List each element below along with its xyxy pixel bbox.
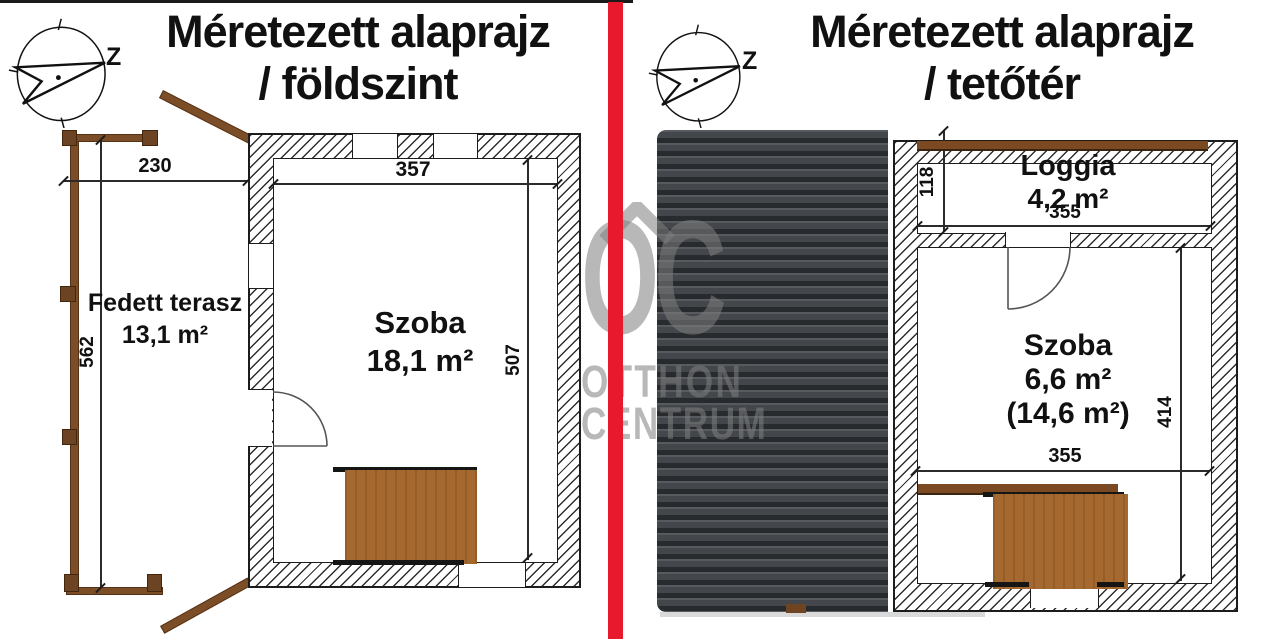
left-plan-title: Méretezett alaprajz xyxy=(108,6,608,58)
left-plan-subtitle: / földszint xyxy=(108,58,608,110)
right-plan-title: Méretezett alaprajz xyxy=(752,6,1252,58)
right-plan-subtitle: / tetőtér xyxy=(752,58,1252,110)
panel-divider xyxy=(608,2,623,639)
floorplan-canvas: Z Méretezett alaprajz / földszint 230 56… xyxy=(0,0,1271,639)
